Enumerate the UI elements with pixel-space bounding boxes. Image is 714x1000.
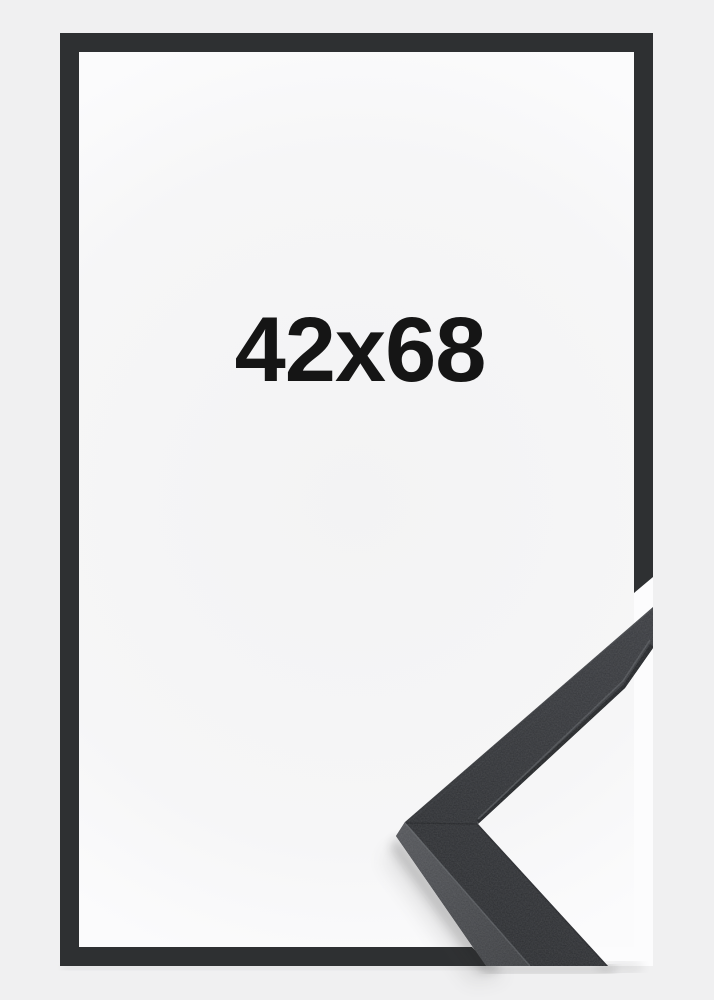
size-label: 42x68: [235, 299, 486, 401]
frame-graphic: 42x68: [0, 0, 714, 1000]
frame-interior: [79, 52, 634, 947]
bottom-shadow: [486, 965, 614, 973]
frame-product-image: 42x68: [0, 0, 714, 1000]
